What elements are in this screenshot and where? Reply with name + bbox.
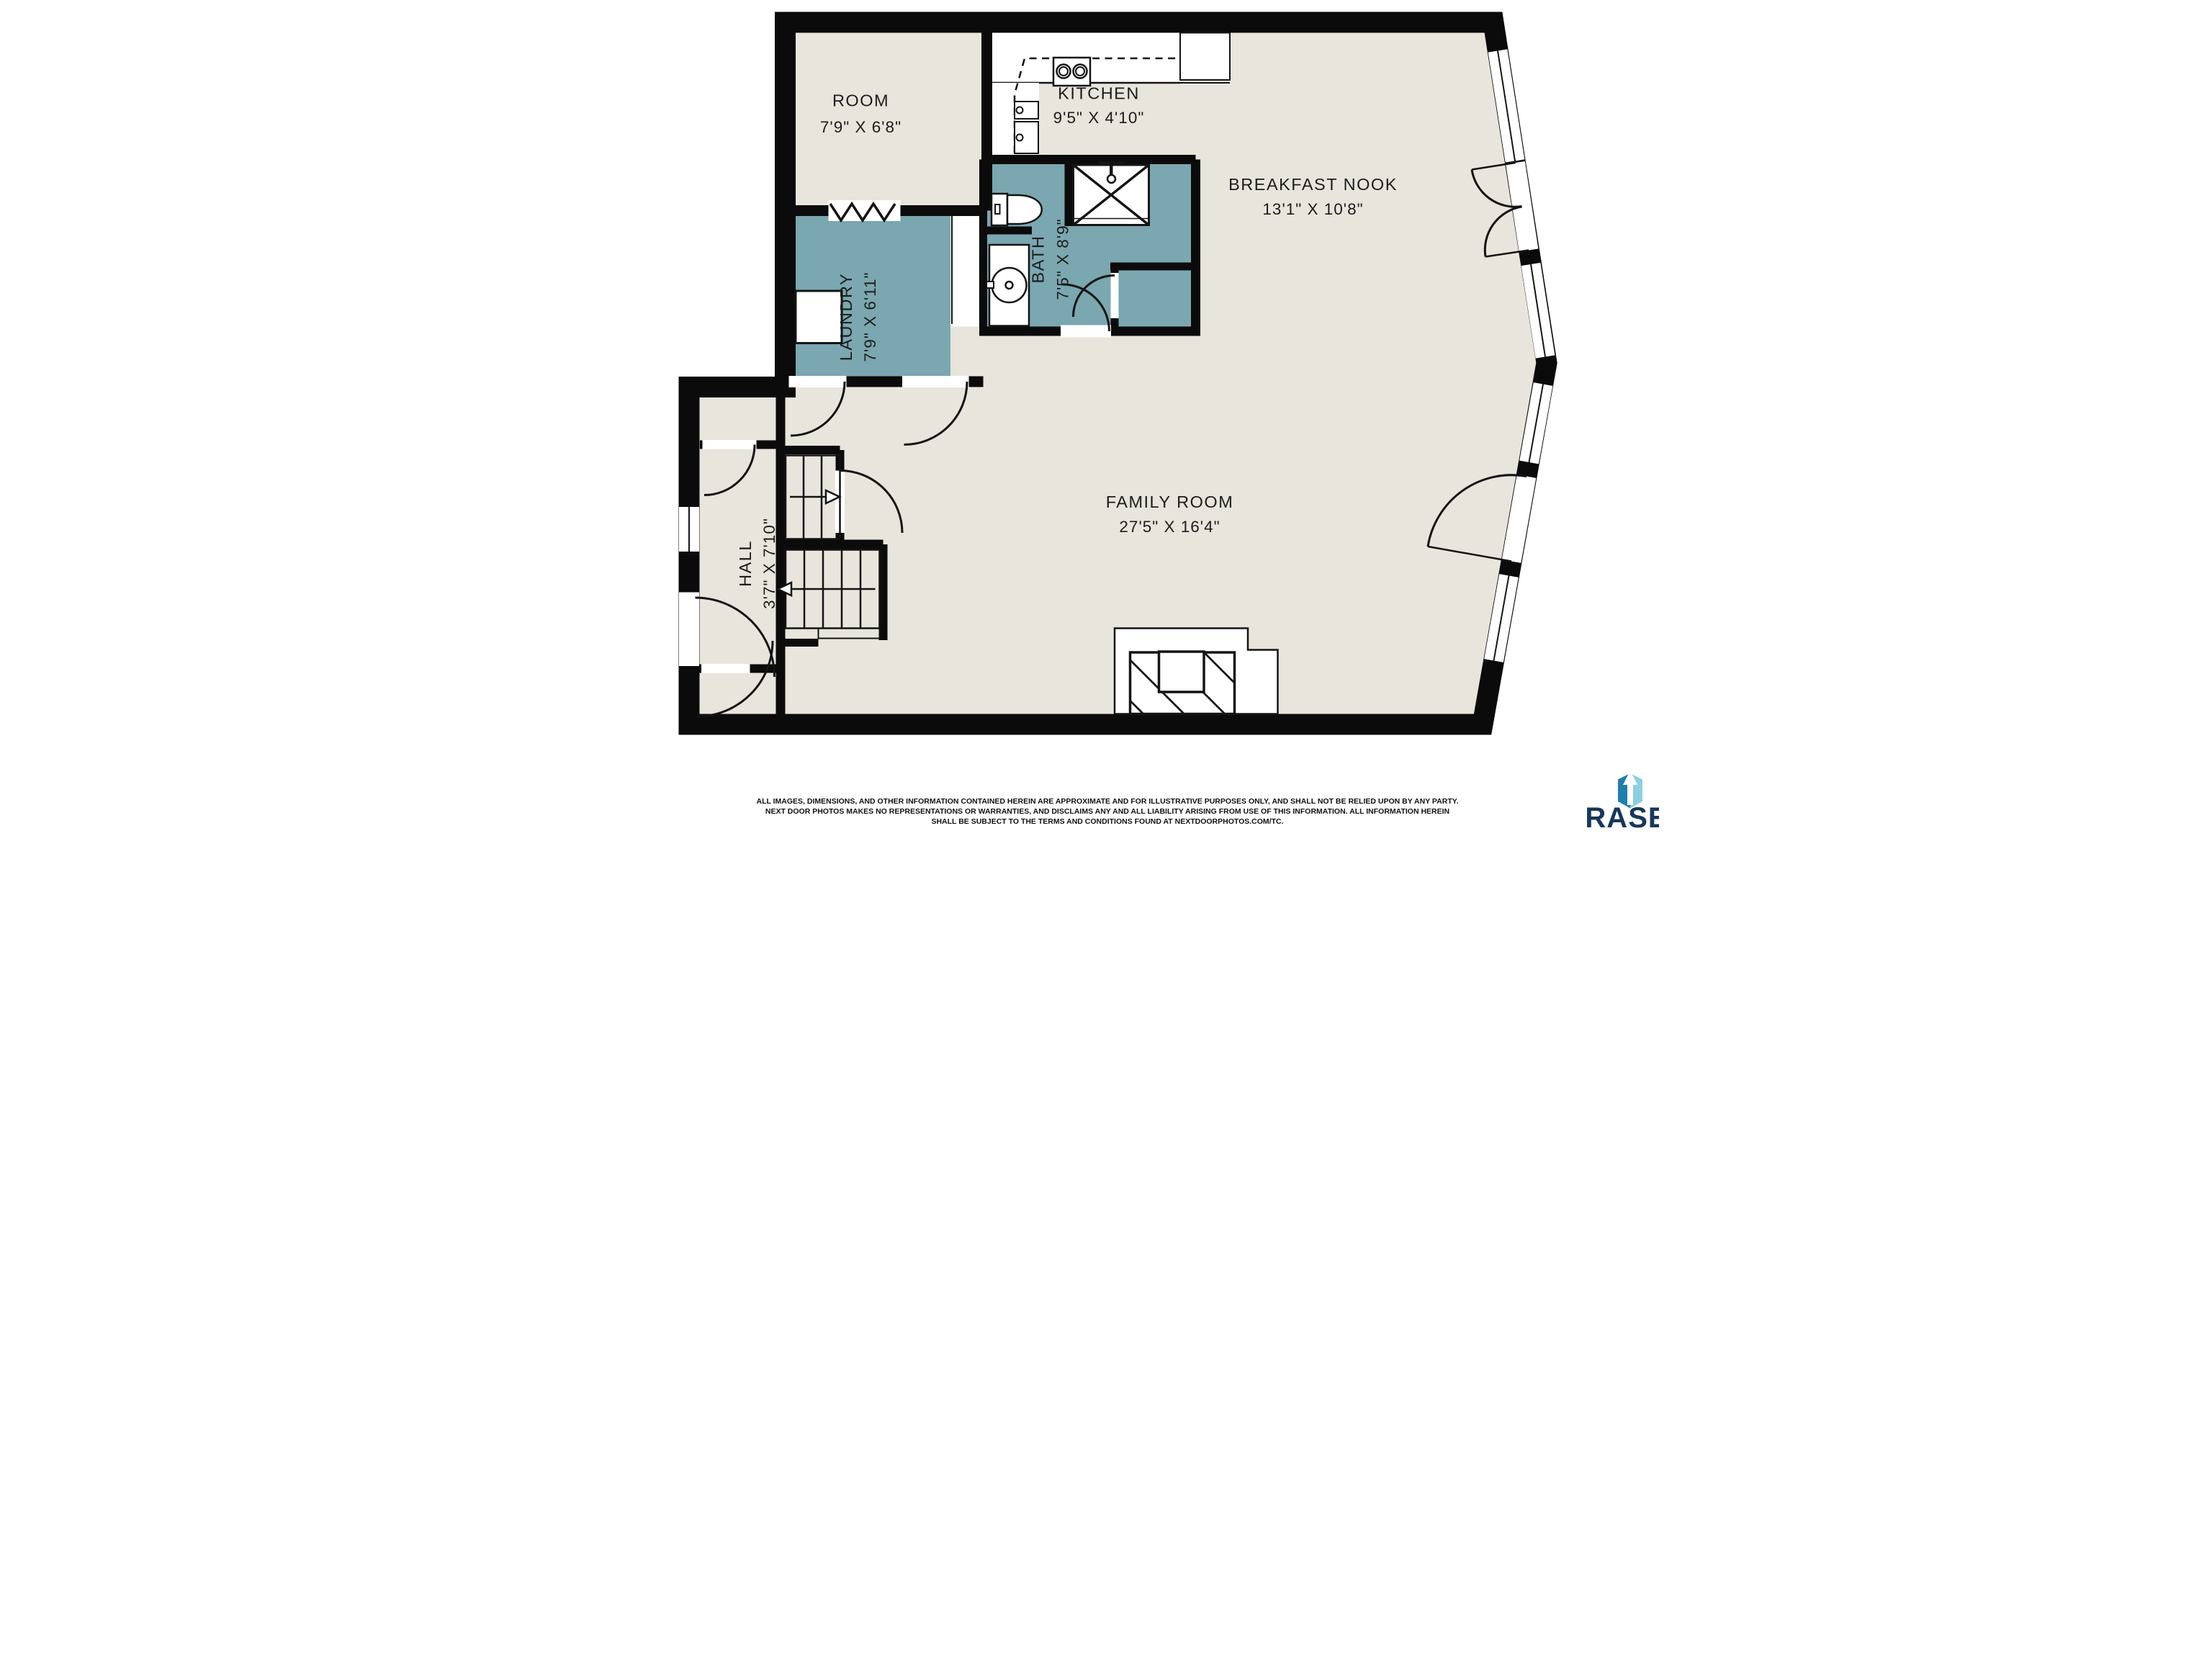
sink-icon: [992, 268, 1027, 302]
disclaimer-line-1: ALL IMAGES, DIMENSIONS, AND OTHER INFORM…: [756, 797, 1458, 806]
disclaimer-line-3: SHALL BE SUBJECT TO THE TERMS AND CONDIT…: [931, 817, 1283, 826]
family-room-label: FAMILY ROOM: [1106, 493, 1234, 511]
entry-door-opening: [679, 593, 699, 667]
rase-logo: RASE: [1585, 770, 1659, 829]
disclaimer-line-2: NEXT DOOR PHOTOS MAKES NO REPRESENTATION…: [765, 807, 1449, 816]
kitchen-dims: 9'5" X 4'10": [1053, 109, 1145, 127]
room-dims: 7'9" X 6'8": [820, 118, 902, 136]
floor-plan-page: ROOM 7'9" X 6'8" KITCHEN 9'5" X 4'10" BR…: [553, 0, 1659, 829]
room-label: ROOM: [832, 91, 889, 110]
bath-dims: 7'5" X 8'9": [1054, 218, 1072, 300]
appliance-front: [1015, 122, 1038, 153]
toilet-bowl: [1007, 195, 1042, 224]
appliance-front: [1015, 102, 1038, 119]
shower-head-icon: [1107, 175, 1115, 183]
laundry-dims: 7'9" X 6'11": [861, 272, 879, 362]
laundry-cabinet-strip: [950, 211, 979, 327]
tall-cabinet: [1180, 33, 1230, 81]
shower-arm-icon: [1110, 164, 1113, 176]
breakfast-nook-dims: 13'1" X 10'8": [1262, 200, 1363, 218]
flush-button: [995, 204, 1000, 214]
faucet-icon: [986, 282, 994, 288]
disclaimer: ALL IMAGES, DIMENSIONS, AND OTHER INFORM…: [756, 797, 1458, 826]
kitchen-label: KITCHEN: [1058, 84, 1140, 103]
bath-label: BATH: [1029, 235, 1048, 284]
breakfast-nook-label: BREAKFAST NOOK: [1228, 175, 1398, 194]
firebox: [1159, 652, 1205, 692]
washer: [796, 291, 842, 343]
laundry-label: LAUNDRY: [837, 273, 855, 361]
family-room-dims: 27'5" X 16'4": [1119, 518, 1220, 536]
hall-dims: 3'7" X 7'10": [760, 518, 778, 609]
hall-label: HALL: [736, 540, 755, 587]
logo-text: RASE: [1585, 802, 1659, 829]
floor-plan-canvas: ROOM 7'9" X 6'8" KITCHEN 9'5" X 4'10" BR…: [553, 0, 1659, 829]
